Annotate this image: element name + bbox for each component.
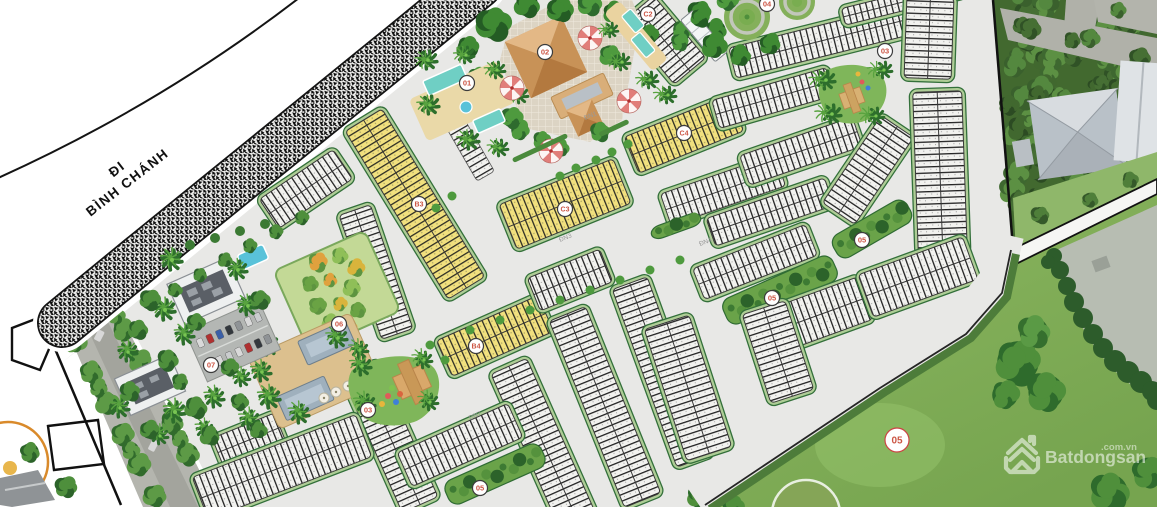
svg-text:03: 03 (881, 47, 889, 56)
svg-text:.com.vn: .com.vn (1101, 442, 1137, 453)
svg-text:B4: B4 (472, 344, 481, 351)
svg-text:C3: C3 (561, 207, 570, 214)
svg-text:05: 05 (768, 294, 776, 303)
svg-text:B3: B3 (415, 202, 424, 209)
svg-text:07: 07 (207, 361, 215, 370)
svg-text:05: 05 (858, 236, 866, 245)
svg-text:04: 04 (763, 0, 772, 9)
svg-text:02: 02 (541, 48, 549, 57)
svg-text:05: 05 (476, 484, 484, 493)
svg-text:C2: C2 (644, 12, 653, 19)
svg-text:03: 03 (364, 406, 372, 415)
svg-text:01: 01 (463, 79, 471, 88)
svg-text:C4: C4 (680, 131, 689, 138)
svg-text:06: 06 (335, 320, 343, 329)
svg-text:05: 05 (891, 436, 903, 447)
